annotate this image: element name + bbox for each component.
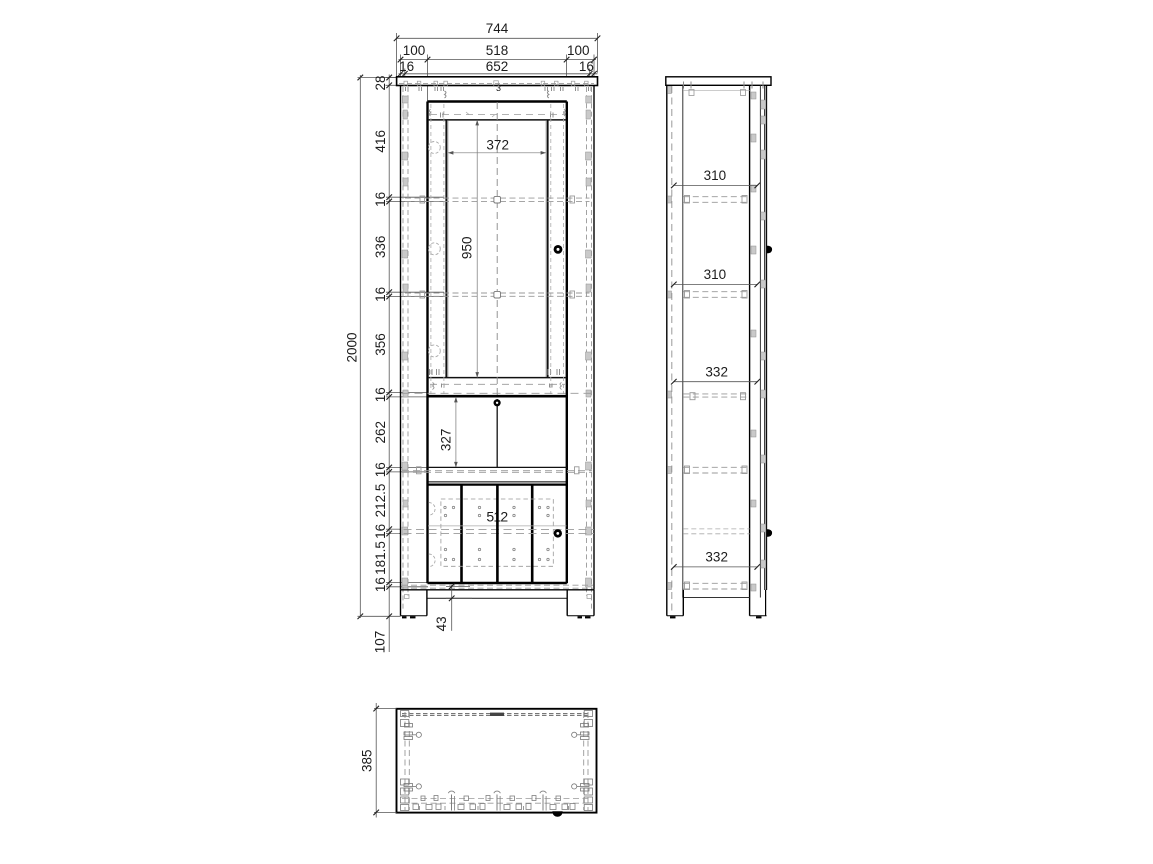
svg-text:16: 16 bbox=[373, 524, 388, 539]
svg-text:262: 262 bbox=[373, 421, 388, 444]
svg-text:327: 327 bbox=[439, 429, 454, 452]
svg-text:16: 16 bbox=[373, 462, 388, 477]
svg-text:336: 336 bbox=[373, 236, 388, 259]
svg-text:107: 107 bbox=[373, 631, 388, 654]
svg-text:332: 332 bbox=[705, 550, 728, 565]
svg-text:100: 100 bbox=[567, 43, 590, 58]
svg-text:310: 310 bbox=[704, 168, 727, 183]
svg-text:950: 950 bbox=[459, 237, 474, 260]
svg-text:744: 744 bbox=[486, 21, 509, 36]
svg-text:518: 518 bbox=[486, 43, 509, 58]
svg-text:43: 43 bbox=[434, 616, 449, 631]
svg-text:385: 385 bbox=[360, 749, 375, 772]
svg-text:16: 16 bbox=[399, 59, 414, 74]
svg-text:310: 310 bbox=[704, 267, 727, 282]
svg-text:16: 16 bbox=[579, 59, 594, 74]
svg-text:356: 356 bbox=[373, 333, 388, 356]
svg-text:3: 3 bbox=[496, 83, 501, 93]
svg-text:16: 16 bbox=[373, 192, 388, 207]
svg-text:28: 28 bbox=[373, 75, 388, 90]
svg-text:16: 16 bbox=[373, 577, 388, 592]
svg-text:332: 332 bbox=[705, 364, 728, 379]
svg-text:100: 100 bbox=[403, 43, 426, 58]
svg-text:652: 652 bbox=[486, 59, 509, 74]
svg-text:2000: 2000 bbox=[344, 332, 359, 362]
svg-text:372: 372 bbox=[486, 138, 509, 153]
svg-text:181.5: 181.5 bbox=[373, 541, 388, 575]
svg-text:212.5: 212.5 bbox=[373, 484, 388, 518]
svg-text:16: 16 bbox=[373, 387, 388, 402]
svg-text:416: 416 bbox=[373, 130, 388, 153]
svg-text:2: 2 bbox=[500, 508, 508, 524]
svg-text:16: 16 bbox=[373, 287, 388, 302]
